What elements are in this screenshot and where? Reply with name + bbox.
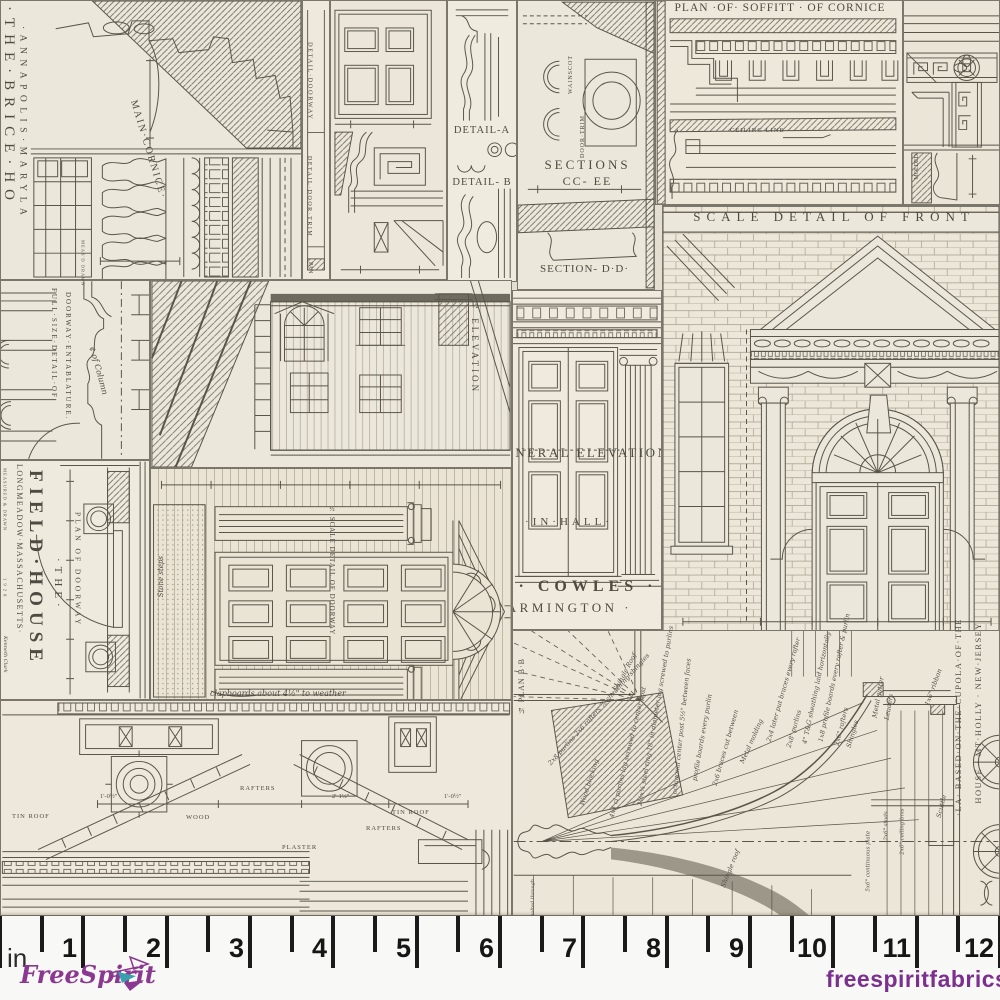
- ruler-number-12: 12: [952, 933, 994, 964]
- cowles-name-label: · COWLES ·: [513, 579, 662, 595]
- brice-credit: MEAS'D DRAWN: [80, 240, 85, 286]
- molding-profiles-drawing: [448, 1, 516, 281]
- ruler-number-5: 5: [369, 933, 411, 964]
- brice-title: ·THE·BRICE·HO: [1, 6, 16, 207]
- sections-label: SECTIONS: [525, 158, 650, 171]
- panel-roof-details: [0, 700, 512, 916]
- stone-steps-note: Stone steps: [158, 556, 165, 597]
- tin-roof-label-1: TIN ROOF: [12, 814, 50, 821]
- cupola-note: 2x6" studs: [885, 811, 891, 840]
- sections-drawing: [518, 1, 654, 289]
- trim-strip-line1: DETAIL·DOORWAY: [306, 42, 313, 120]
- ruler-tick: [415, 916, 419, 968]
- quarter-plan-label: ¼ PLAN B·B: [518, 658, 526, 715]
- clapboards-note: clapboards about 4½" to weather: [210, 690, 346, 698]
- cowles-town-label: FARMINGTON ·: [512, 601, 632, 614]
- door-trim-label: DOOR·TRIM: [580, 115, 586, 158]
- trim-strip-line3: PAN: [307, 262, 313, 273]
- ruler-tick: [498, 916, 502, 968]
- panel-door-details: [330, 0, 447, 280]
- ruler-tick: [665, 916, 669, 968]
- cupola-title-2: HOUSE · MT·HOLLY · NEW·JERSEY: [974, 622, 983, 804]
- ruler-number-8: 8: [619, 933, 661, 964]
- entablature-title-1: FULL·SIZE·DETAIL·OF: [50, 288, 57, 399]
- panel-cowles: GENERAL ELEVATION ·IN·HALL· · COWLES · F…: [512, 290, 662, 630]
- ruler-number-10: 10: [785, 933, 827, 964]
- panel-detail-ab: [447, 0, 517, 282]
- detail-a-label: DETAIL-A: [447, 126, 517, 137]
- house-elevation-drawing: [151, 281, 511, 467]
- field-house-year: 1 9 2 8: [2, 578, 7, 597]
- molded-label: MOLDED·: [914, 152, 920, 180]
- ruler-number-11: 11: [869, 933, 911, 964]
- cupola-title-1: ·LA· BASED·ON·THE·CUPOLA·OF·THE: [954, 618, 963, 816]
- cowles-hall-label: ·IN·HALL·: [513, 517, 625, 528]
- wood-label: WOOD: [186, 815, 210, 822]
- section-dd-label: SECTION- D·D·: [517, 264, 652, 275]
- website-text: freespiritfabrics.com: [826, 966, 1000, 993]
- cupola-note: 5x6" continuous plate: [867, 831, 873, 892]
- ruler-tick: [331, 916, 335, 968]
- tin-roof-label-2: TIN ROOF: [392, 810, 430, 817]
- field-house-credit: Kenneth Clark: [2, 636, 7, 673]
- paneled-door-drawing: [331, 1, 446, 279]
- cupola-section-drawing: [513, 631, 999, 915]
- wainscot-label: WAINSCOT: [568, 55, 574, 94]
- ruler-number-3: 3: [202, 933, 244, 964]
- dim-label-3: 1'-0½": [444, 794, 461, 801]
- panel-sections: [517, 0, 655, 290]
- rafters-label-1: RAFTERS: [240, 786, 276, 793]
- ruler-tick: [831, 916, 835, 968]
- soffit-plan-drawing: [656, 1, 902, 204]
- ruler-number-4: 4: [285, 933, 327, 964]
- panel-house-elevation: [150, 280, 512, 468]
- cowles-elevation-label: GENERAL ELEVATION: [512, 446, 662, 459]
- brice-subtitle: ·ANNAPOLIS·MARYLA: [17, 26, 27, 220]
- field-house-the: ·THE·: [52, 558, 63, 612]
- ruler-number-7: 7: [535, 933, 577, 964]
- fabric-swatch-photo: GENERAL ELEVATION ·IN·HALL· · COWLES · F…: [0, 0, 1000, 1000]
- doorway-scale-label: ½ SCALE DETAIL OF DOORWAY: [328, 505, 335, 635]
- ceiling-line-label: CEILING LINE: [730, 128, 784, 135]
- trim-strip-line2: DETAIL·DOOR·TRIM: [306, 156, 312, 237]
- ruler-tick: [915, 916, 919, 968]
- cupola-note: 2x6" ceiling bms: [901, 808, 907, 854]
- dim-label-1: 1'-0½": [100, 794, 117, 801]
- panel-cupola-section: [512, 630, 1000, 916]
- ruler-number-6: 6: [452, 933, 494, 964]
- plaster-label: PLASTER: [282, 845, 317, 852]
- dim-label-2: 2'-1¼": [332, 794, 349, 801]
- freespirit-logo-glyph: [108, 956, 152, 994]
- detail-b-label: DETAIL- B: [447, 178, 517, 189]
- ruler-tick: [248, 916, 252, 968]
- half-elevation-label: ½ ELEVATION: [470, 300, 479, 394]
- ruler-band: in 1 2 3 4 5 6 7 8 9 10 11 12 FreeSpirit…: [0, 916, 1000, 1000]
- soffit-title: PLAN ·OF· SOFFITT · OF CORNICE: [660, 3, 900, 15]
- ruler-tick: [581, 916, 585, 968]
- plan-of-doorway-label: PLAN OF DOORWAY: [74, 512, 82, 627]
- ruler-tick: [748, 916, 752, 968]
- entablature-title-2: DOORWAY·ENTABLATURE.: [64, 292, 71, 420]
- pediment-details-drawing: [1, 701, 511, 915]
- field-house-name: FIELD·HOUSE: [26, 470, 45, 667]
- panel-entablature: [0, 280, 150, 460]
- field-house-location: LONGMEADOW·MASSACHUSETTS·: [15, 464, 23, 634]
- sections-cc-ee-label: CC- EE: [525, 175, 650, 187]
- fabric-print-area: GENERAL ELEVATION ·IN·HALL· · COWLES · F…: [0, 0, 1000, 916]
- ruler-tick: [165, 916, 169, 968]
- panel-front-detail: [662, 205, 1000, 632]
- rafters-label-2: RAFTERS: [366, 826, 402, 833]
- ruler-number-9: 9: [702, 933, 744, 964]
- front-title: SCALE DETAIL OF FRONT: [668, 210, 1000, 223]
- panel-soffit-plan: [655, 0, 903, 205]
- entablature-profile-drawing: [1, 281, 149, 459]
- field-house-measured: MEASURED & DRAWN: [2, 468, 7, 531]
- front-facade-drawing: [663, 206, 999, 631]
- ruler-tick: [0, 916, 2, 968]
